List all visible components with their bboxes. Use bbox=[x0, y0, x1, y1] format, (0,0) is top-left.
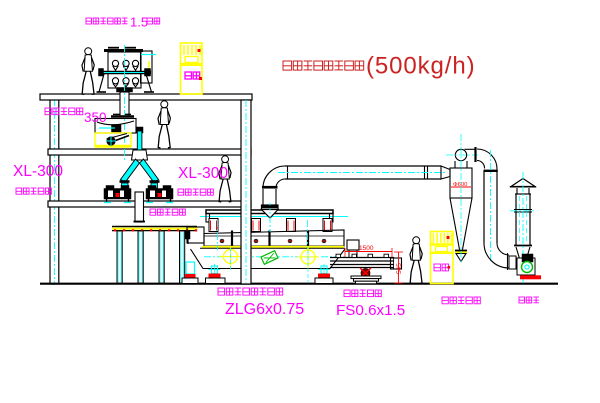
svg-text:1500: 1500 bbox=[359, 245, 374, 252]
svg-text:ZLG6x0.75: ZLG6x0.75 bbox=[225, 301, 304, 318]
svg-text:1.5: 1.5 bbox=[130, 15, 148, 30]
svg-text:XL-300: XL-300 bbox=[178, 165, 228, 182]
svg-text:FS0.6x1.5: FS0.6x1.5 bbox=[336, 302, 405, 319]
svg-text:350: 350 bbox=[84, 110, 107, 125]
svg-text:(500kg/h): (500kg/h) bbox=[366, 53, 476, 80]
svg-text:XL-300: XL-300 bbox=[13, 163, 63, 180]
svg-text:Φ600: Φ600 bbox=[453, 182, 467, 188]
svg-text:545: 545 bbox=[396, 263, 403, 274]
